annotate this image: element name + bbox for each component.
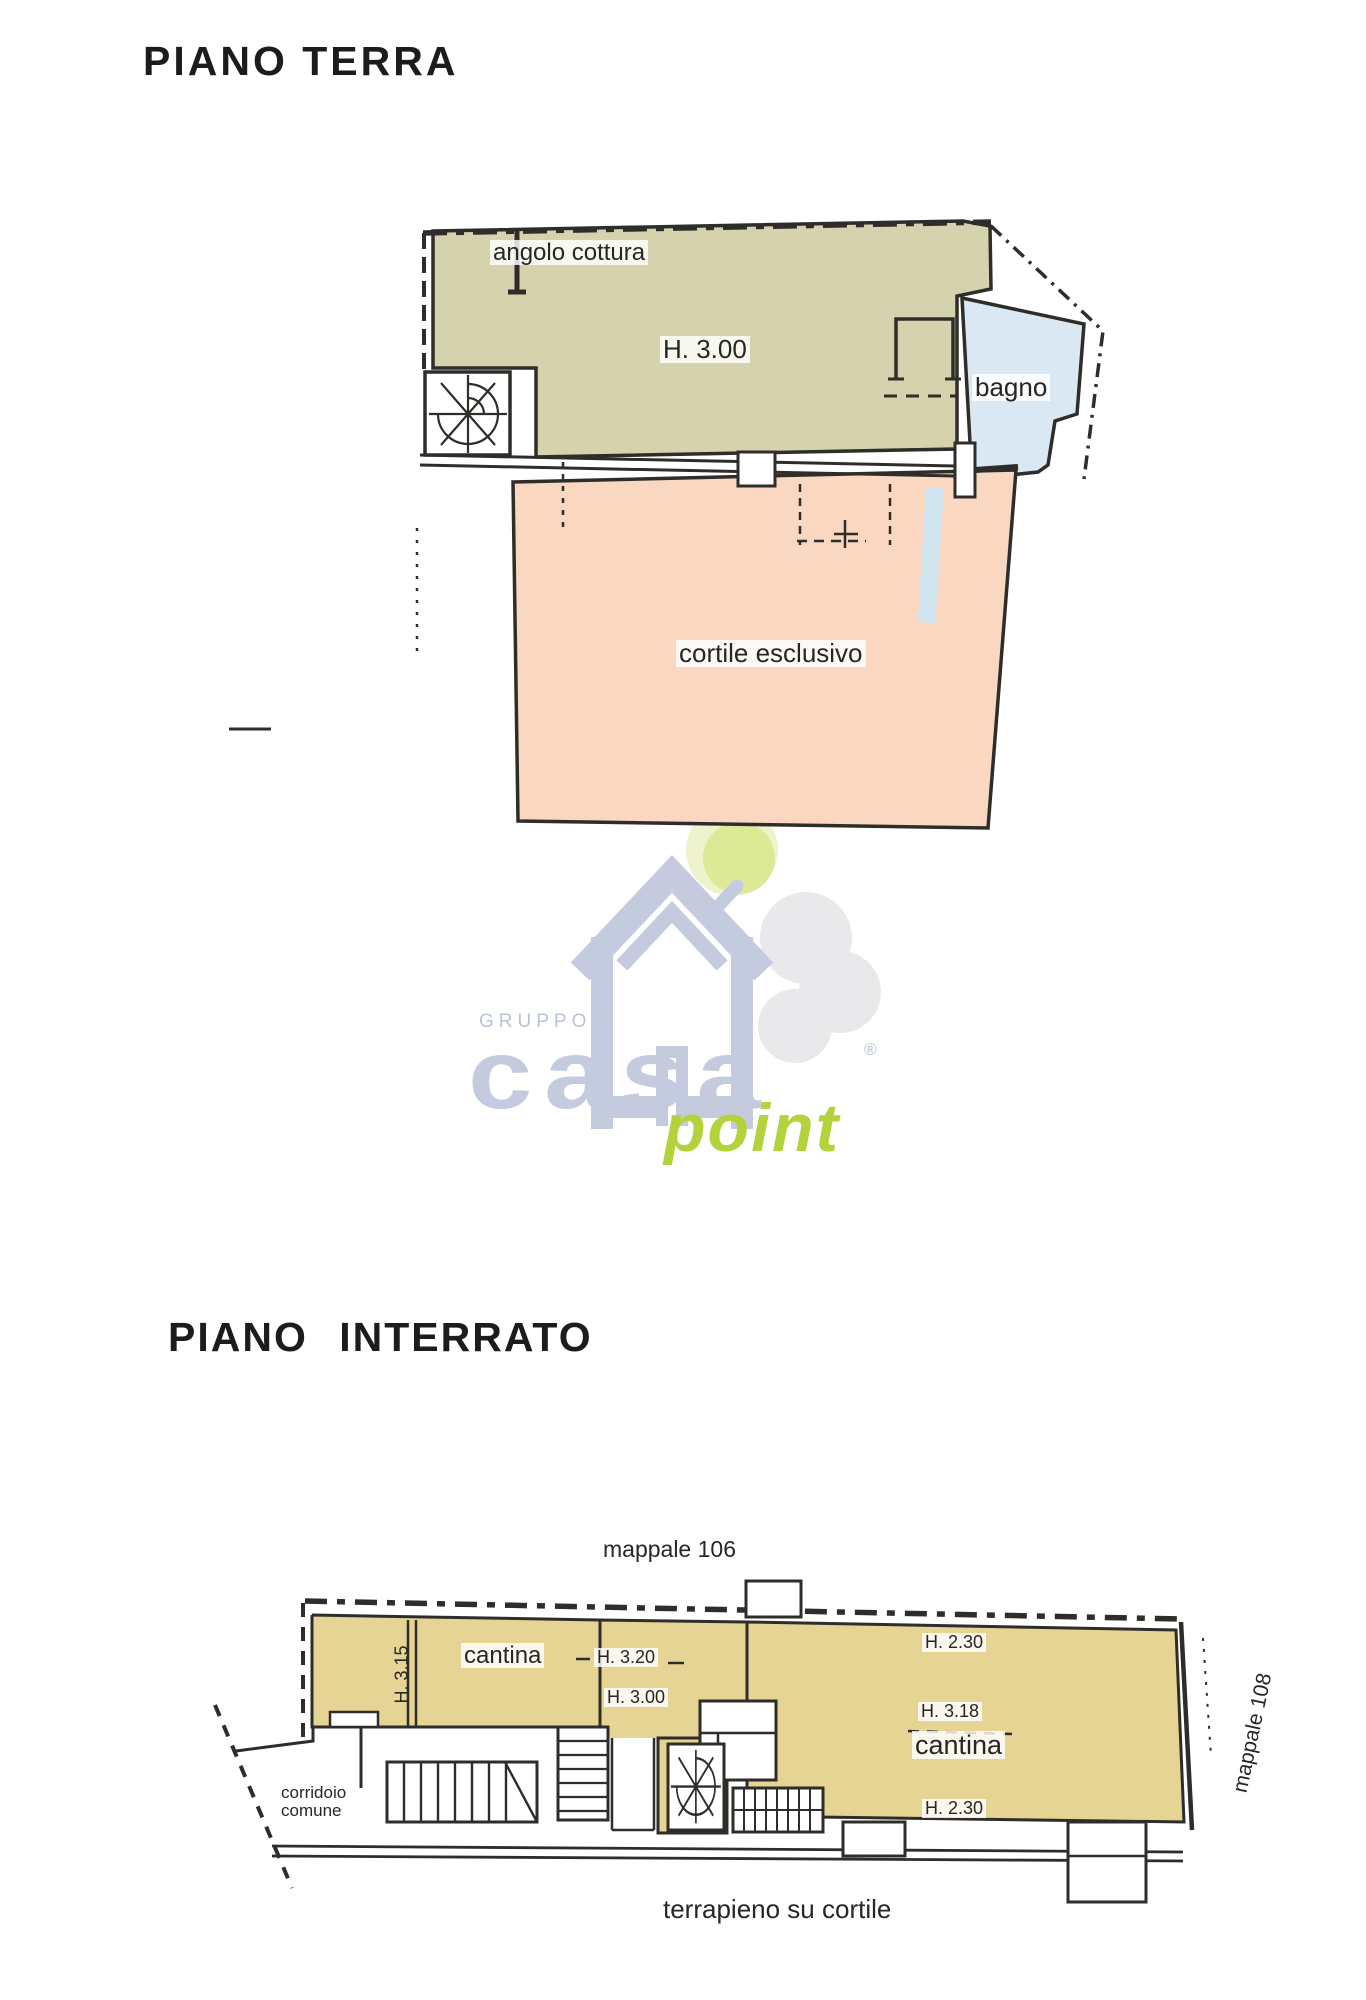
cellar-left-height-a-label: H. 3.20 bbox=[594, 1648, 658, 1667]
staircase-main bbox=[387, 1762, 537, 1822]
basement-right-dashdot bbox=[1203, 1638, 1211, 1756]
corridor-label-line2: comune bbox=[281, 1801, 341, 1820]
cellar-left-label: cantina bbox=[461, 1643, 544, 1668]
wall-pillar bbox=[738, 452, 775, 486]
room-height-label: H. 3.00 bbox=[660, 336, 750, 363]
corridor-label-line1: corridoio bbox=[281, 1783, 346, 1802]
cellar-right-height-bottom-label: H. 2.30 bbox=[922, 1799, 986, 1818]
basement-plan bbox=[215, 1581, 1211, 1902]
staircase-secondary bbox=[558, 1727, 654, 1830]
ground-floor-plan bbox=[229, 221, 1103, 828]
bathroom-label: bagno bbox=[972, 374, 1050, 401]
basement-bottom-walls bbox=[272, 1846, 1183, 1861]
courtyard-label: cortile esclusivo bbox=[676, 640, 866, 667]
corridor-label: corridoio comune bbox=[278, 1784, 349, 1820]
cellar-left-height-side-label: H. 3.15 bbox=[393, 1611, 412, 1737]
cellar-right-height-mid-label: H. 3.18 bbox=[918, 1702, 982, 1721]
scanned-floorplan-page: GRUPPO casa ® point bbox=[0, 0, 1366, 2000]
ground-floor-title: PIANO TERRA bbox=[143, 38, 458, 85]
staircase-hatched bbox=[733, 1788, 823, 1832]
cellar-left-height-b-label: H. 3.00 bbox=[604, 1688, 668, 1707]
basement-title: PIANO INTERRATO bbox=[168, 1314, 593, 1361]
wall-step bbox=[955, 443, 975, 497]
floorplan-drawing bbox=[0, 0, 1366, 2000]
bottom-wall bbox=[420, 455, 955, 476]
cellar-notch bbox=[330, 1712, 378, 1727]
terrace-notch-right bbox=[1068, 1822, 1146, 1902]
cellar-left bbox=[312, 1615, 600, 1727]
cellar-right-label: cantina bbox=[912, 1731, 1005, 1759]
terrace-notch-left bbox=[843, 1822, 905, 1856]
wall-step-top bbox=[975, 467, 1018, 470]
terrace-caption: terrapieno su cortile bbox=[660, 1896, 894, 1923]
cellar-right-height-top-label: H. 2.30 bbox=[922, 1633, 986, 1652]
parcel-106-label: mappale 106 bbox=[600, 1537, 739, 1561]
shaft-box bbox=[746, 1581, 801, 1617]
kitchen-label: angolo cottura bbox=[490, 240, 648, 265]
